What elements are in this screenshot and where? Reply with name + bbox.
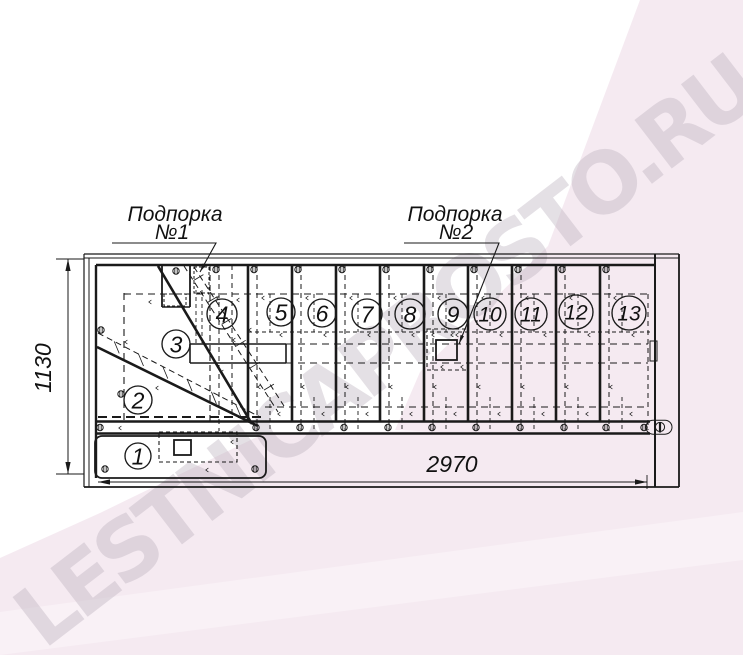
step-number-6: 6 xyxy=(316,300,329,326)
fastener-symbol xyxy=(603,424,609,430)
dimension-width-value: 2970 xyxy=(425,451,477,477)
fastener-symbol xyxy=(173,268,179,274)
step-number-2: 2 xyxy=(131,387,145,413)
fastener-symbol xyxy=(341,424,347,430)
dimension-height: 1130 xyxy=(30,259,84,474)
tick-mark xyxy=(119,426,122,430)
step-number-9: 9 xyxy=(447,301,460,327)
fastener-symbol xyxy=(252,466,258,472)
fastener-symbol xyxy=(118,391,124,397)
tick-mark xyxy=(306,296,309,300)
fastener-symbol xyxy=(517,424,523,430)
tick-mark xyxy=(350,296,353,300)
tick-mark xyxy=(456,333,459,337)
tick-mark xyxy=(302,385,305,389)
tick-mark xyxy=(280,333,283,337)
tick-mark xyxy=(438,296,441,300)
fastener-symbol xyxy=(515,266,521,272)
stair-plan-screenshot: LESTNICAPROSTO.RU xyxy=(0,0,743,655)
hatch-tick xyxy=(264,384,274,390)
step-number-10: 10 xyxy=(478,304,502,327)
tick-mark xyxy=(461,365,464,369)
tick-mark xyxy=(394,296,397,300)
tick-mark xyxy=(324,333,327,337)
step-number-4: 4 xyxy=(216,301,229,327)
tick-mark xyxy=(451,333,454,337)
step-number-3: 3 xyxy=(170,331,183,357)
first-step-plank xyxy=(95,436,266,478)
tick-mark xyxy=(149,300,152,304)
dimension-width: 2970 xyxy=(98,451,647,489)
fastener-symbol xyxy=(429,424,435,430)
fastener-symbol xyxy=(251,266,257,272)
tick-mark xyxy=(544,333,547,337)
tick-mark xyxy=(522,385,525,389)
support-label-1: Подпорка №1 xyxy=(112,203,223,272)
fastener-symbol xyxy=(213,266,219,272)
tick-mark xyxy=(432,333,435,337)
tick-mark xyxy=(498,412,501,416)
step-number-1: 1 xyxy=(132,443,145,469)
tick-mark xyxy=(434,385,437,389)
fastener-symbol xyxy=(297,424,303,430)
tick-mark xyxy=(632,333,635,337)
fastener-symbol xyxy=(339,266,345,272)
tick-mark xyxy=(366,412,369,416)
tick-mark xyxy=(390,385,393,389)
stair-drawing: 12345678910111213 Подпорка №1 Подпорка №… xyxy=(0,0,743,655)
fastener-symbol xyxy=(561,424,567,430)
support-2-label-line2: №2 xyxy=(439,221,474,244)
fastener-symbol xyxy=(603,266,609,272)
tick-mark xyxy=(500,333,503,337)
tick-mark xyxy=(478,385,481,389)
fastener-symbol xyxy=(385,424,391,430)
tick-mark xyxy=(322,412,325,416)
tick-mark xyxy=(125,340,128,344)
fastener-symbol xyxy=(295,266,301,272)
tick-mark xyxy=(454,412,457,416)
tick-mark xyxy=(441,365,444,369)
fastener-symbol xyxy=(98,327,104,333)
step-number-5: 5 xyxy=(275,299,288,325)
tick-mark xyxy=(586,412,589,416)
fastener-symbol xyxy=(427,266,433,272)
dimension-height-value: 1130 xyxy=(30,343,56,393)
tick-mark xyxy=(630,412,633,416)
tick-mark xyxy=(346,385,349,389)
hatch-tick xyxy=(163,367,168,379)
tick-mark xyxy=(614,296,617,300)
tick-mark xyxy=(368,333,371,337)
support-1-label-line2: №1 xyxy=(155,221,189,244)
tick-mark xyxy=(278,412,281,416)
fastener-symbol xyxy=(559,266,565,272)
generated-geometry: 12345678910111213 xyxy=(97,265,648,472)
fastener-symbol xyxy=(473,424,479,430)
tick-mark xyxy=(262,296,265,300)
fastener-symbol xyxy=(383,266,389,272)
tick-mark xyxy=(610,385,613,389)
tick-mark xyxy=(410,412,413,416)
tick-mark xyxy=(566,385,569,389)
tick-mark xyxy=(231,440,234,444)
fastener-symbol xyxy=(102,466,108,472)
tick-mark xyxy=(156,386,159,390)
tick-mark xyxy=(412,333,415,337)
step-number-13: 13 xyxy=(617,303,641,326)
tick-mark xyxy=(237,298,240,302)
tick-mark xyxy=(588,333,591,337)
step-number-8: 8 xyxy=(404,301,417,327)
fastener-symbol xyxy=(97,424,103,430)
tick-mark xyxy=(233,338,236,342)
fastener-symbol xyxy=(471,266,477,272)
step-number-7: 7 xyxy=(361,301,375,327)
step-number-12: 12 xyxy=(564,302,588,325)
tick-mark xyxy=(258,385,261,389)
tick-mark xyxy=(206,468,209,472)
tick-mark xyxy=(542,412,545,416)
step-number-11: 11 xyxy=(520,304,542,327)
